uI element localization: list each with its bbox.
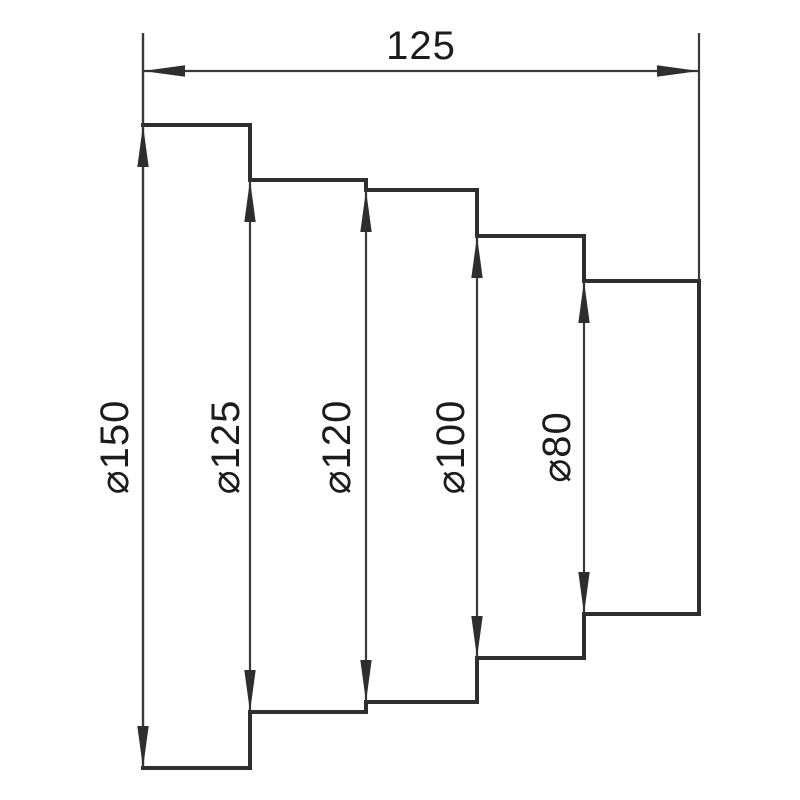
diameter-label-125: ⌀125 bbox=[204, 400, 248, 495]
arrowhead-down-125 bbox=[244, 670, 255, 712]
arrowhead-down-150 bbox=[137, 726, 148, 768]
length-dimension-label: 125 bbox=[386, 24, 456, 68]
drawing-canvas: 125 ⌀150 ⌀125 ⌀120 ⌀100 bbox=[0, 0, 800, 800]
diameter-dimension-150: ⌀150 bbox=[93, 33, 149, 768]
arrowhead-down-100 bbox=[471, 616, 482, 658]
diameter-label-80: ⌀80 bbox=[535, 411, 579, 483]
length-dimension: 125 bbox=[143, 24, 699, 281]
technical-drawing: 125 ⌀150 ⌀125 ⌀120 ⌀100 bbox=[0, 0, 800, 800]
arrowhead-down-120 bbox=[360, 660, 371, 702]
arrowhead-up-100 bbox=[471, 236, 482, 278]
diameter-label-150: ⌀150 bbox=[93, 400, 137, 495]
arrowhead-up-80 bbox=[578, 281, 589, 323]
diameter-label-100: ⌀100 bbox=[429, 400, 473, 495]
diameter-dimension-120: ⌀120 bbox=[315, 190, 372, 702]
diameter-label-120: ⌀120 bbox=[315, 400, 359, 495]
arrowhead-up-150 bbox=[137, 125, 148, 167]
arrowhead-up-120 bbox=[360, 190, 371, 232]
arrowhead-left bbox=[143, 65, 185, 76]
diameter-dimension-80: ⌀80 bbox=[535, 281, 590, 614]
arrowhead-right bbox=[657, 65, 699, 76]
diameter-dimension-125: ⌀125 bbox=[204, 180, 256, 712]
diameter-dimension-100: ⌀100 bbox=[429, 236, 483, 658]
arrowhead-down-80 bbox=[578, 572, 589, 614]
arrowhead-up-125 bbox=[244, 180, 255, 222]
